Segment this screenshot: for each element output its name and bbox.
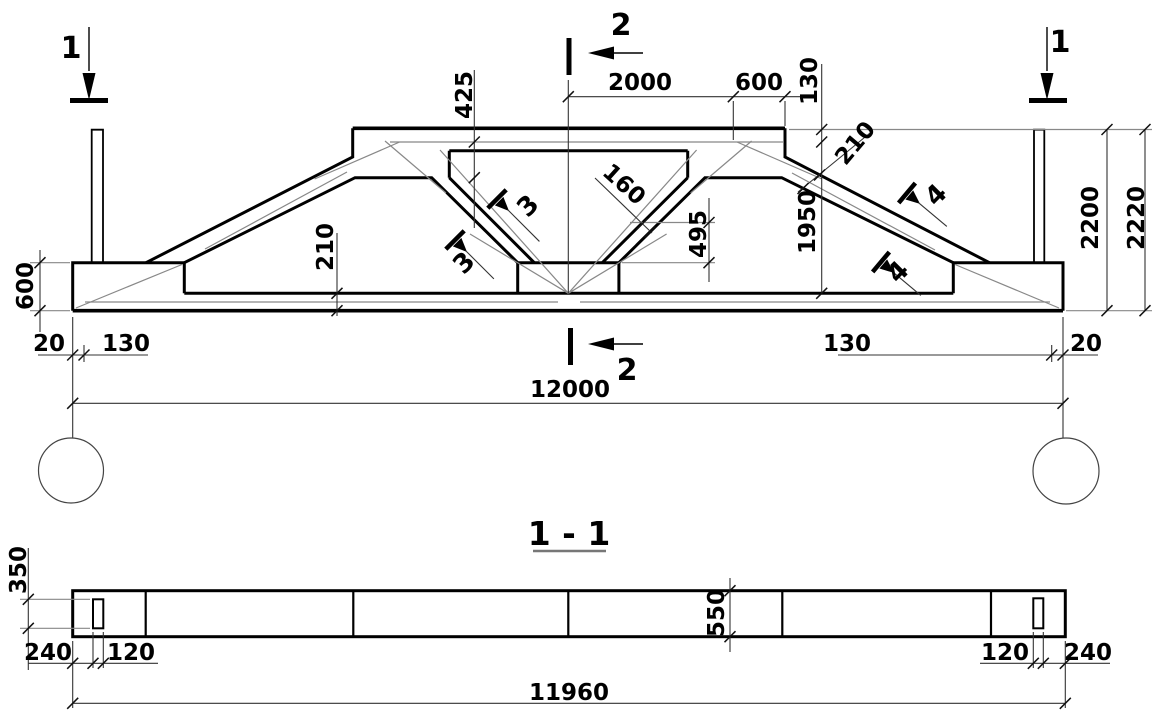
section-label-2-top: 2 xyxy=(611,8,632,43)
section-extension-lines xyxy=(20,599,90,628)
dim-130-left: 130 xyxy=(102,331,150,357)
dim-1950: 1950 xyxy=(795,190,821,254)
arrow-left-icon xyxy=(588,47,614,60)
dim-550: 550 xyxy=(704,589,730,637)
truss-drawing: 1 1 2 2 3 xyxy=(0,0,1161,718)
dim-120-right: 120 xyxy=(981,640,1029,666)
arrow-down-icon xyxy=(83,73,96,100)
elevation-view: 1 1 2 2 3 xyxy=(13,8,1152,504)
dim-130-top: 130 xyxy=(797,57,823,105)
arrow-left-icon xyxy=(588,338,614,351)
dim-2220: 2220 xyxy=(1124,186,1150,250)
section-mark-1-right: 1 xyxy=(1029,25,1070,101)
dim-130-right: 130 xyxy=(823,331,871,357)
section-mark-1-left: 1 xyxy=(61,27,108,101)
section-label-1-right: 1 xyxy=(1050,25,1071,60)
left-hole xyxy=(93,599,103,628)
left-post xyxy=(92,130,103,263)
grid-bubble-left xyxy=(39,438,104,503)
dim-350: 350 xyxy=(6,546,32,594)
dim-2000: 2000 xyxy=(608,70,672,96)
dim-240-left: 240 xyxy=(24,640,72,666)
dim-20-left: 20 xyxy=(33,331,65,357)
grid-bubbles xyxy=(39,438,1100,504)
dim-160: 160 xyxy=(597,159,650,210)
arrow-down-icon xyxy=(1041,73,1054,100)
right-hole xyxy=(1033,598,1043,628)
section-mark-2-top: 2 xyxy=(569,8,643,75)
section-view-1-1: 1 - 1 xyxy=(6,514,1112,709)
grid-bubble-right xyxy=(1033,438,1099,504)
dim-2200: 2200 xyxy=(1078,186,1104,250)
dim-600-top: 600 xyxy=(735,70,783,96)
beam-plan-outline xyxy=(73,591,1066,637)
dim-12000: 12000 xyxy=(530,377,610,403)
dim-120-left: 120 xyxy=(107,640,155,666)
dim-210-chord: 210 xyxy=(830,117,881,170)
section-title: 1 - 1 xyxy=(528,514,611,553)
dim-600-left: 600 xyxy=(13,262,39,310)
dim-210-bottom-chord: 210 xyxy=(313,223,339,271)
section-label-3b: 3 xyxy=(447,246,481,280)
section-label-1-left: 1 xyxy=(61,31,82,66)
dim-425: 425 xyxy=(452,71,478,119)
right-post xyxy=(1034,130,1044,263)
dim-11960: 11960 xyxy=(529,680,609,706)
section-label-2-bottom: 2 xyxy=(617,353,638,388)
dimension-ticks xyxy=(35,91,1151,409)
dim-20-right: 20 xyxy=(1070,331,1102,357)
dim-240-right: 240 xyxy=(1064,640,1112,666)
reinforcement-lines xyxy=(30,130,1152,311)
drawing-sheet: 1 1 2 2 3 xyxy=(0,0,1161,718)
dim-495: 495 xyxy=(686,210,712,258)
